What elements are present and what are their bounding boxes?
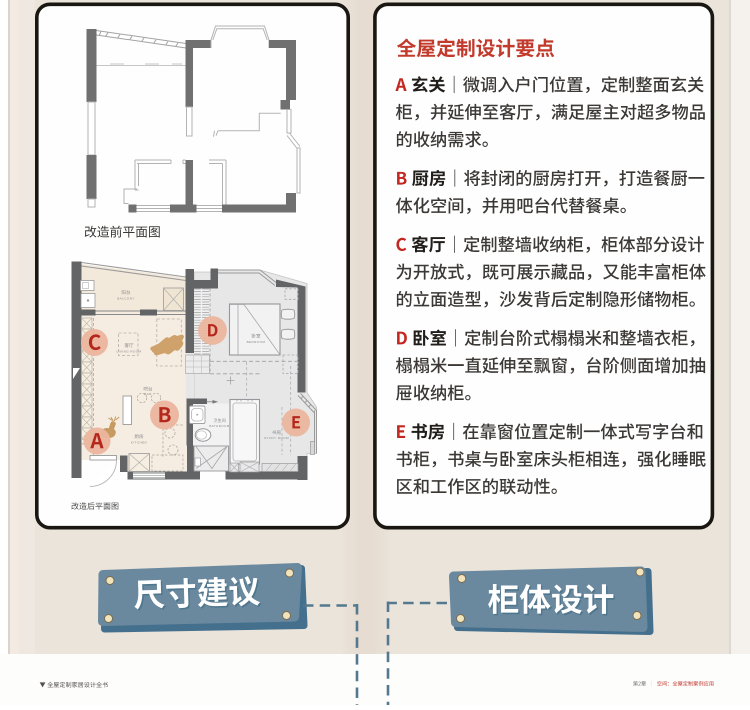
svg-text:BEDROOM: BEDROOM (247, 340, 266, 344)
svg-text:BATHROOM: BATHROOM (209, 424, 229, 428)
svg-text:BAR: BAR (144, 392, 152, 396)
svg-text:STUDY ROOM: STUDY ROOM (264, 436, 289, 440)
svg-text:BALCONY: BALCONY (117, 297, 135, 301)
svg-text:KITCHEN: KITCHEN (131, 441, 147, 445)
svg-text:LIVING ROOM: LIVING ROOM (116, 350, 141, 354)
